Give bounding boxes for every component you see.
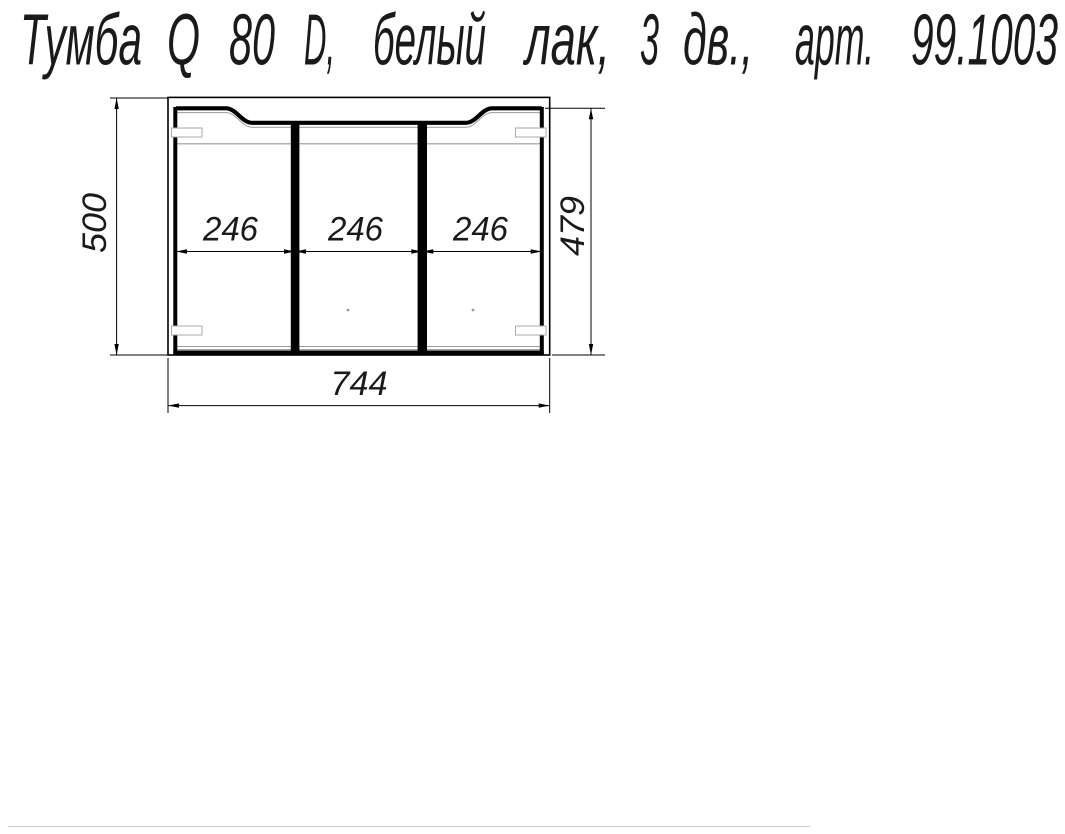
svg-text:Q: Q (167, 1, 200, 81)
svg-text:500: 500 (76, 193, 114, 253)
svg-text:246: 246 (202, 211, 258, 249)
svg-text:белый: белый (373, 1, 486, 81)
svg-text:80: 80 (229, 1, 275, 81)
svg-text:D,: D, (304, 1, 335, 81)
svg-text:Тумба: Тумба (20, 1, 142, 81)
svg-text:лак,: лак, (522, 1, 610, 81)
svg-text:744: 744 (331, 365, 388, 403)
svg-text:99.1003: 99.1003 (911, 1, 1058, 81)
svg-text:арт.: арт. (795, 1, 874, 81)
svg-text:246: 246 (327, 211, 383, 249)
svg-text:3: 3 (640, 1, 659, 81)
svg-text:479: 479 (554, 196, 592, 256)
svg-text:246: 246 (452, 211, 508, 249)
svg-text:дв.,: дв., (683, 1, 753, 81)
